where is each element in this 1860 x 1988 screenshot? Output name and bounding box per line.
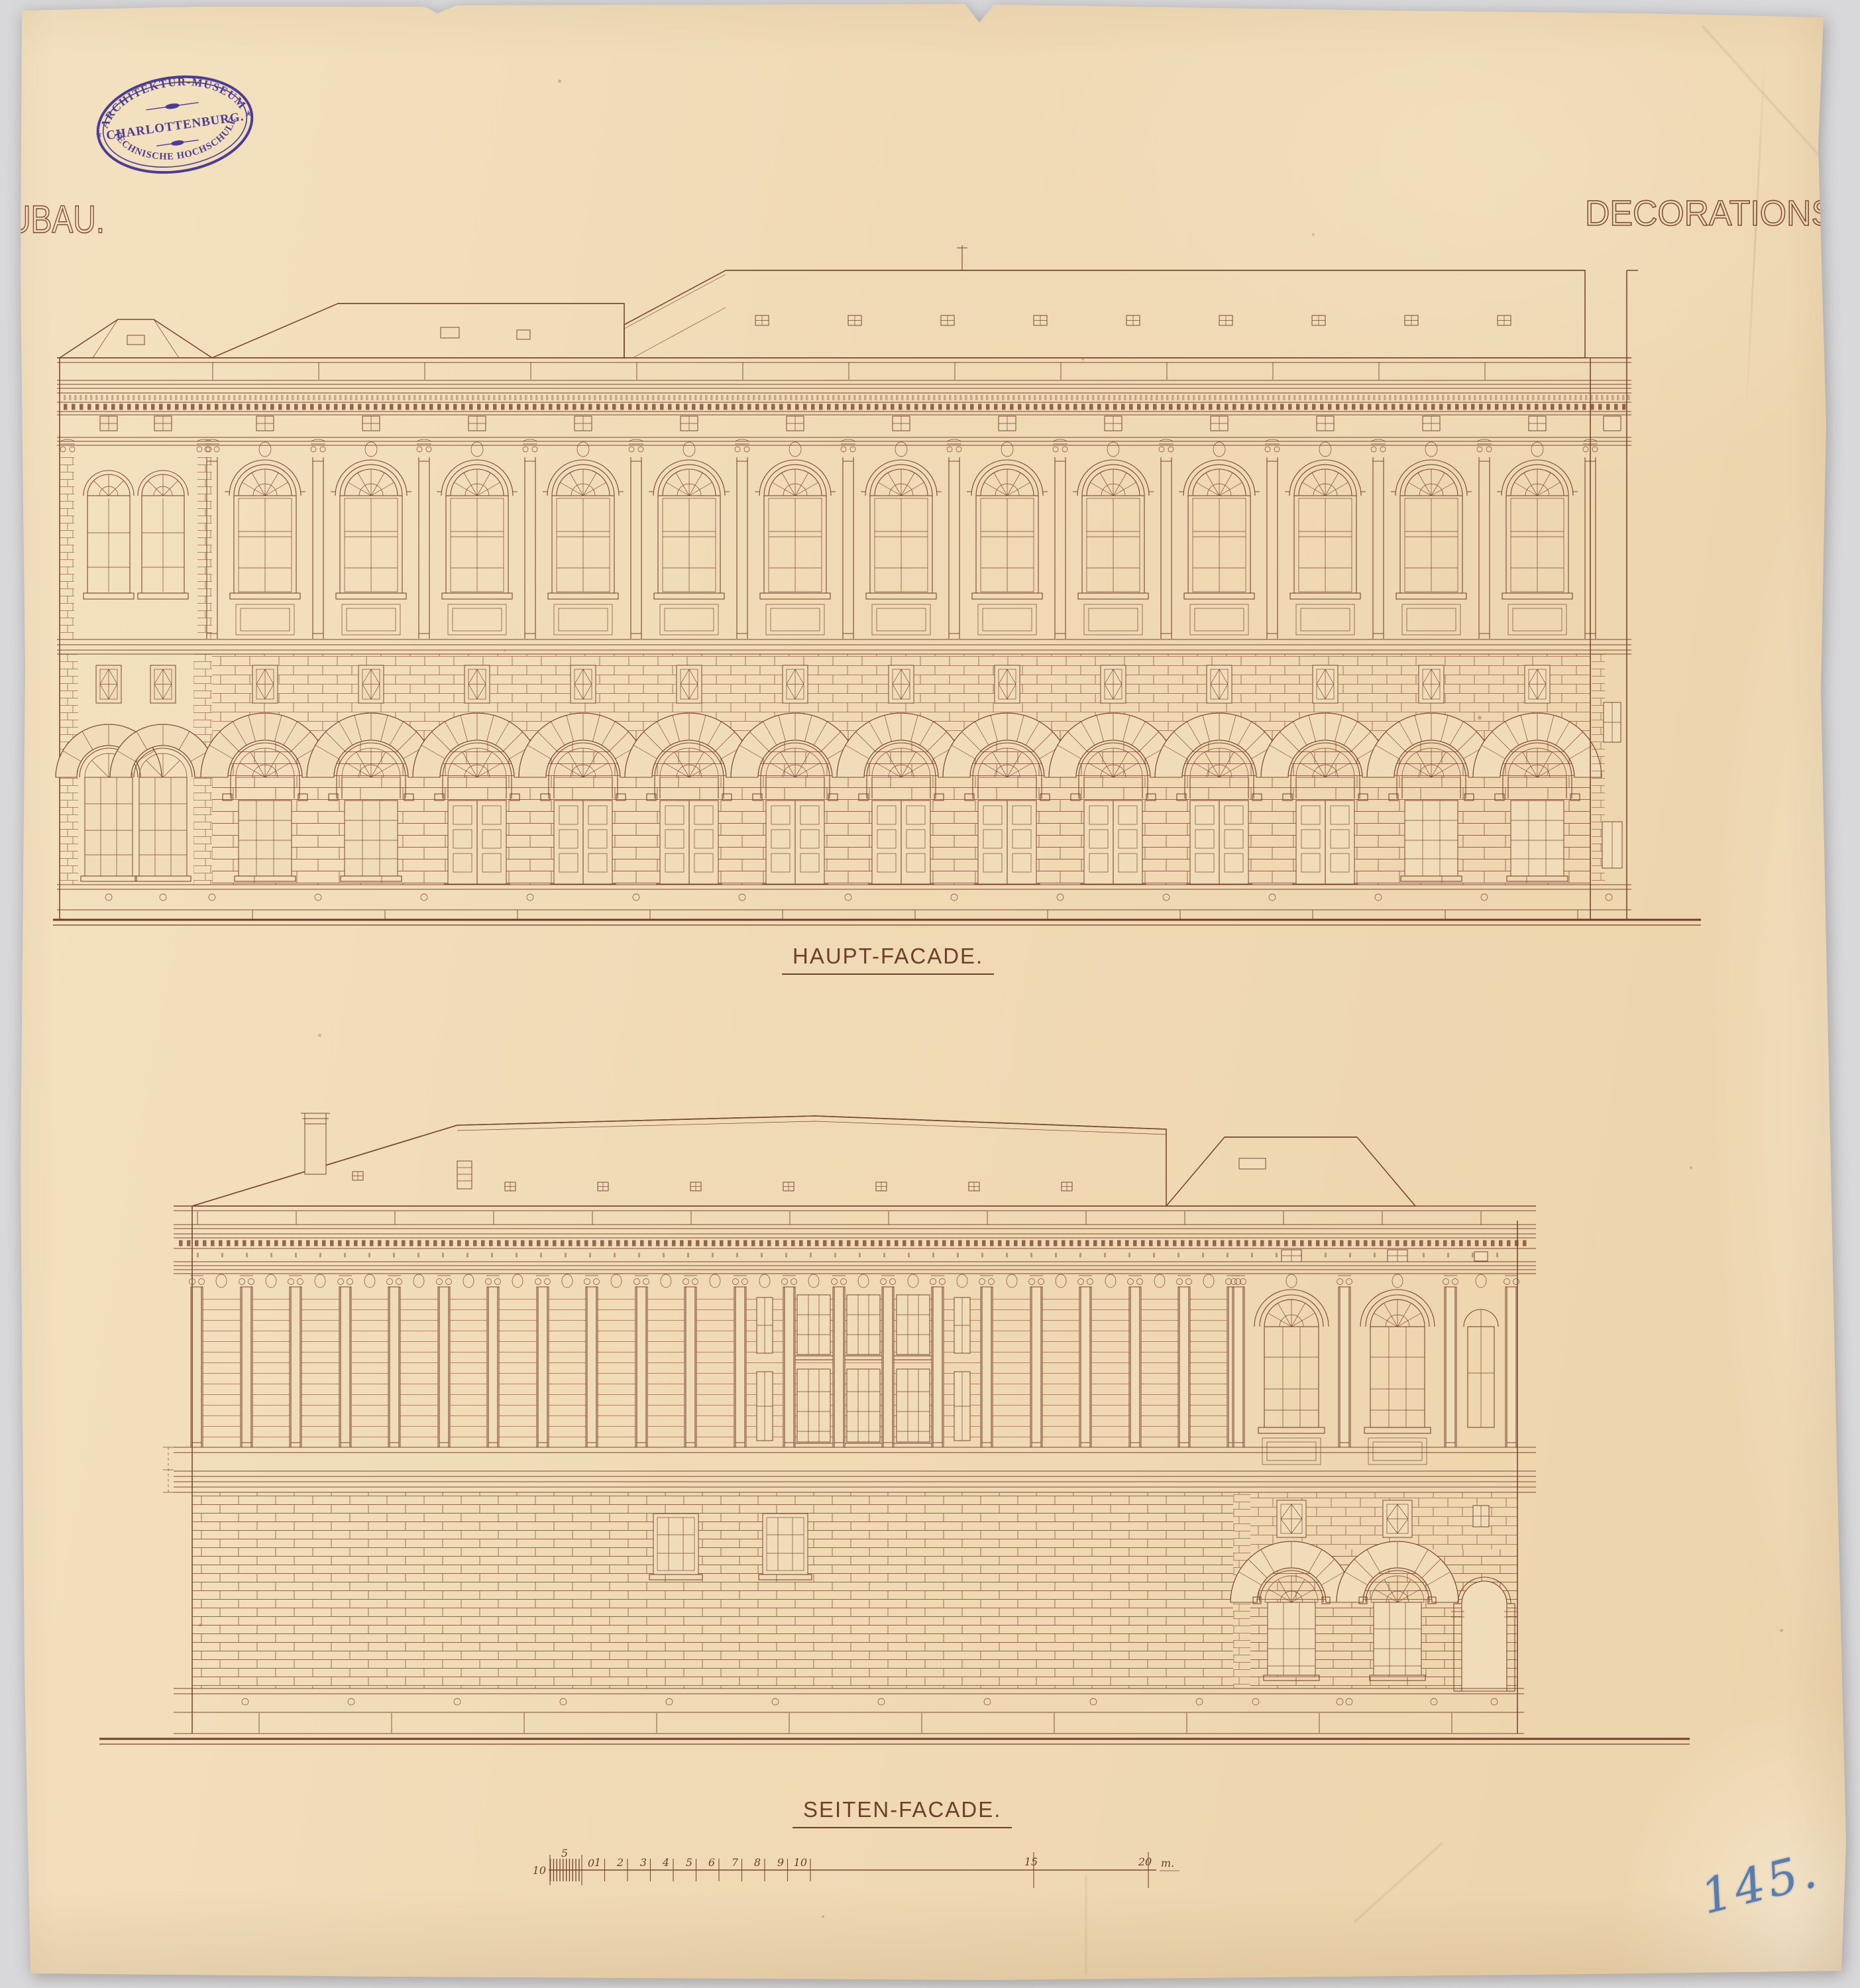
main-facade-entablature bbox=[57, 358, 1631, 654]
scale-tick-label: 10 bbox=[533, 1864, 546, 1877]
scale-tick-label: 2 bbox=[616, 1856, 624, 1869]
scale-bar: 10 5 0 1 2 3 4 5 6 7 8 9 10 15 20 m. bbox=[523, 1832, 1206, 1905]
scale-tick-label: 5 bbox=[561, 1847, 568, 1859]
main-facade-right-return bbox=[1590, 270, 1638, 920]
paper-sheet: ARCHITEKTUR-MUSEUM CHARLOTTENBURG. TECHN… bbox=[0, 0, 1860, 1988]
crease bbox=[1702, 26, 1836, 174]
side-facade-drawing bbox=[99, 1108, 1796, 1761]
scale-tick-label: 4 bbox=[662, 1856, 669, 1869]
archive-number: 145. bbox=[1696, 1842, 1825, 1924]
scale-tick-label: 5 bbox=[686, 1856, 692, 1869]
svg-text:DECORATIONS: DECORATIONS bbox=[1585, 193, 1834, 233]
museum-stamp: ARCHITEKTUR-MUSEUM CHARLOTTENBURG. TECHN… bbox=[78, 52, 273, 197]
side-facade-roof bbox=[192, 1113, 1415, 1206]
scale-tick-label: 10 bbox=[794, 1856, 807, 1869]
scanned-drawing-page: ARCHITEKTUR-MUSEUM CHARLOTTENBURG. TECHN… bbox=[0, 0, 1860, 1988]
title-right: DECORATIONS bbox=[1577, 191, 1860, 237]
lower-brick-wall bbox=[192, 1492, 1233, 1688]
scale-tick-label: 15 bbox=[1024, 1855, 1038, 1868]
foxing-dot bbox=[1312, 233, 1315, 236]
scale-tick-label: 20 bbox=[1138, 1855, 1152, 1868]
scale-tick-label: 3 bbox=[640, 1856, 647, 1869]
scale-unit-label: m. bbox=[1161, 1857, 1174, 1869]
scale-tick-label: 0 bbox=[588, 1857, 594, 1869]
caption-haupt-facade: HAUPT-FACADE. bbox=[782, 944, 994, 975]
crease bbox=[1353, 1842, 1443, 1923]
foxing-dot bbox=[318, 1034, 321, 1037]
title-left-partial: UBAU. bbox=[0, 196, 152, 244]
scale-tick-label: 9 bbox=[777, 1856, 784, 1869]
foxing-dot bbox=[822, 1915, 824, 1918]
scale-tick-label: 8 bbox=[754, 1856, 761, 1869]
foxing-dot bbox=[558, 80, 561, 83]
svg-text:*: * bbox=[95, 129, 103, 146]
stamp-arc-bottom-text: TECHNISCHE HOCHSCHULE. bbox=[75, 48, 243, 174]
svg-text:UBAU.: UBAU. bbox=[8, 198, 105, 241]
scale-tick-label: 1 bbox=[594, 1856, 601, 1869]
main-facade-drawing bbox=[53, 239, 1703, 931]
paper-wrap: ARCHITEKTUR-MUSEUM CHARLOTTENBURG. TECHN… bbox=[0, 0, 1860, 1988]
main-facade-left-pavilion bbox=[56, 358, 216, 920]
main-facade-base bbox=[53, 885, 1701, 925]
scale-tick-label: 6 bbox=[708, 1856, 715, 1869]
main-facade-roof bbox=[60, 245, 1585, 358]
scale-tick-label: 7 bbox=[732, 1856, 739, 1869]
caption-seiten-facade: SEITEN-FACADE. bbox=[793, 1797, 1012, 1828]
